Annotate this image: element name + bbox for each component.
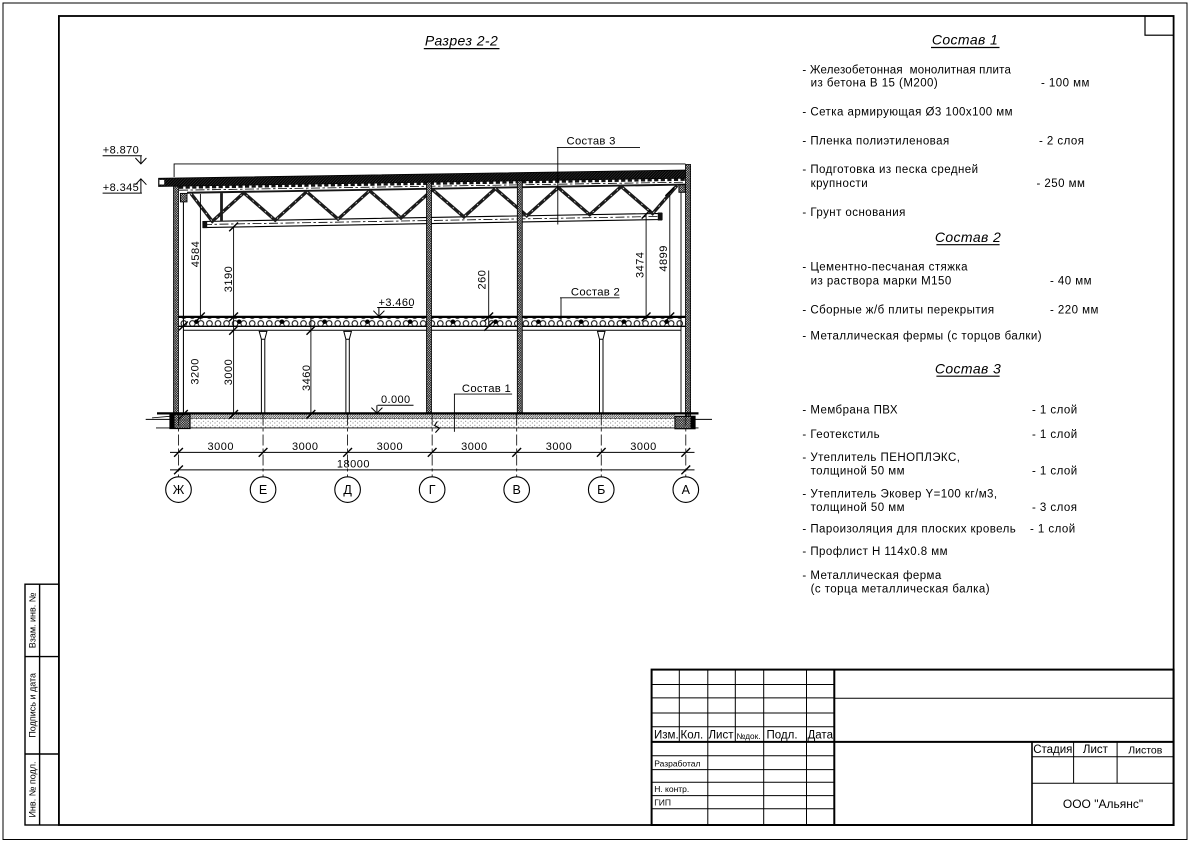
svg-text:Д: Д (343, 483, 352, 497)
svg-text:+8.870: +8.870 (103, 145, 139, 157)
svg-text:толщиной 50 мм: толщиной 50 мм (811, 502, 905, 514)
svg-text:Состав 2: Состав 2 (571, 287, 620, 299)
svg-text:А: А (682, 483, 691, 497)
svg-text:Лист: Лист (1083, 744, 1109, 756)
svg-text:- 1 слой: - 1 слой (1030, 524, 1076, 536)
svg-text:- Сборные ж/б плиты перекрытия: - Сборные ж/б плиты перекрытия (802, 304, 994, 316)
svg-text:Е: Е (259, 483, 267, 497)
svg-text:4899: 4899 (658, 245, 670, 271)
svg-text:Разработал: Разработал (654, 759, 700, 769)
svg-text:- Подготовка из песка средней: - Подготовка из песка средней (802, 164, 978, 176)
svg-text:Состав 3: Состав 3 (567, 136, 616, 148)
svg-text:3000: 3000 (292, 441, 318, 453)
svg-text:- Профлист Н 114х0.8 мм: - Профлист Н 114х0.8 мм (802, 546, 948, 558)
svg-text:3000: 3000 (630, 441, 656, 453)
svg-text:Кол.: Кол. (681, 729, 704, 741)
svg-text:- Мембрана ПВХ: - Мембрана ПВХ (802, 405, 898, 417)
svg-text:- Металлическая фермы (с торцо: - Металлическая фермы (с торцов балки) (802, 331, 1042, 343)
svg-text:- 40 мм: - 40 мм (1050, 276, 1092, 288)
svg-text:крупности: крупности (811, 178, 869, 190)
svg-text:Листов: Листов (1128, 745, 1163, 757)
svg-text:3474: 3474 (634, 252, 646, 278)
svg-text:Инв. № подл.: Инв. № подл. (28, 761, 38, 817)
svg-text:Г: Г (429, 483, 436, 497)
svg-text:- Металлическая ферма: - Металлическая ферма (802, 570, 942, 582)
svg-text:0.000: 0.000 (381, 394, 411, 406)
svg-text:- Сетка армирующая Ø3 100х100: - Сетка армирующая Ø3 100х100 мм (802, 107, 1013, 119)
svg-text:- 1 слой: - 1 слой (1032, 466, 1078, 478)
svg-text:(с торца металлическая балка): (с торца металлическая балка) (811, 583, 990, 595)
svg-text:- Пленка полиэтиленовая: - Пленка полиэтиленовая (802, 136, 949, 148)
svg-text:- 3 слоя: - 3 слоя (1032, 502, 1077, 514)
svg-text:Лист: Лист (709, 729, 735, 741)
svg-text:3000: 3000 (546, 441, 572, 453)
svg-text:3460: 3460 (301, 364, 313, 390)
svg-text:- 220 мм: - 220 мм (1050, 304, 1099, 316)
svg-text:Дата: Дата (808, 729, 834, 741)
svg-text:В: В (513, 483, 521, 497)
svg-text:- Грунт основания: - Грунт основания (802, 207, 905, 219)
svg-text:Изм.: Изм. (654, 729, 679, 741)
svg-text:3000: 3000 (208, 441, 234, 453)
svg-text:Стадия: Стадия (1033, 744, 1072, 756)
svg-text:- 2 слоя: - 2 слоя (1039, 136, 1084, 148)
svg-text:3200: 3200 (190, 358, 202, 384)
svg-text:из раствора марки М150: из раствора марки М150 (811, 276, 952, 288)
svg-text:- 100 мм: - 100 мм (1041, 78, 1090, 90)
svg-text:Разрез 2-2: Разрез 2-2 (425, 32, 498, 48)
svg-text:Состав 1: Состав 1 (932, 32, 998, 48)
svg-text:- Цементно-песчаная стяжка: - Цементно-песчаная стяжка (802, 262, 968, 274)
svg-text:№док.: №док. (737, 732, 761, 741)
svg-text:3000: 3000 (461, 441, 487, 453)
svg-text:- Пароизоляция для плоских кро: - Пароизоляция для плоских кровель (802, 524, 1016, 536)
svg-text:260: 260 (477, 270, 489, 290)
svg-text:Состав 3: Состав 3 (935, 360, 1001, 376)
svg-text:- 250 мм: - 250 мм (1037, 178, 1086, 190)
svg-text:- Железобетонная монолитная п: - Железобетонная монолитная плита (802, 64, 1011, 76)
svg-text:ООО "Альянс": ООО "Альянс" (1063, 797, 1143, 811)
svg-text:Н. контр.: Н. контр. (654, 784, 689, 794)
svg-text:- Утеплитель Эковер Y=100 кг/м: - Утеплитель Эковер Y=100 кг/м3, (802, 489, 997, 501)
svg-text:Подпись и дата: Подпись и дата (28, 673, 38, 738)
svg-text:толщиной 50 мм: толщиной 50 мм (811, 466, 905, 478)
svg-text:из бетона В 15 (М200): из бетона В 15 (М200) (811, 78, 939, 90)
svg-text:Состав 2: Состав 2 (935, 229, 1001, 245)
svg-text:- 1 слой: - 1 слой (1032, 429, 1078, 441)
svg-text:- 1 слой: - 1 слой (1032, 405, 1078, 417)
svg-text:3000: 3000 (377, 441, 403, 453)
svg-text:+8.345: +8.345 (103, 182, 139, 194)
svg-text:Взам. инв. №: Взам. инв. № (28, 592, 38, 648)
svg-text:Состав 1: Состав 1 (462, 383, 511, 395)
svg-text:Б: Б (597, 483, 605, 497)
svg-text:- Геотекстиль: - Геотекстиль (802, 429, 880, 441)
svg-text:ГИП: ГИП (654, 798, 671, 808)
svg-text:4584: 4584 (190, 241, 202, 267)
svg-text:- Утеплитель ПЕНОПЛЭКС,: - Утеплитель ПЕНОПЛЭКС, (802, 452, 960, 464)
svg-text:3190: 3190 (223, 266, 235, 292)
svg-text:Ж: Ж (173, 483, 185, 497)
svg-text:3000: 3000 (223, 359, 235, 385)
svg-text:18000: 18000 (337, 459, 370, 471)
svg-text:Подл.: Подл. (767, 729, 798, 741)
